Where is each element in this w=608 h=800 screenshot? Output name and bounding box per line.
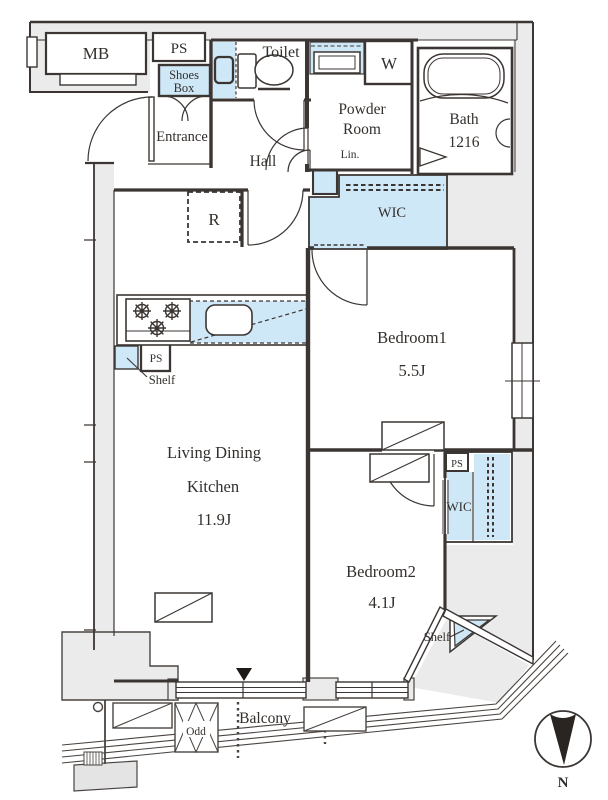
- entrance-door-leaf: [149, 97, 154, 161]
- shoes-box-door-arc: [163, 96, 188, 121]
- vent-hatch: [84, 752, 102, 765]
- powder-room-label: Powder: [338, 101, 386, 118]
- pipe-space-top-label: PS: [171, 41, 188, 57]
- powder-room-label: Room: [343, 121, 381, 138]
- hall-label: Hall: [250, 153, 277, 170]
- ldk-label: Living Dining: [167, 443, 261, 462]
- hall-ldk-door: [248, 190, 303, 245]
- linen-closet: [313, 170, 337, 194]
- toilet-tank: [238, 54, 256, 88]
- ldk-size-label: 11.9J: [197, 510, 232, 529]
- bedroom1-size-label: 5.5J: [398, 361, 426, 380]
- refrigerator-label: R: [208, 210, 220, 229]
- outdoor-unit-label: Odd: [186, 726, 206, 738]
- bedroom2-label: Bedroom2: [346, 562, 416, 581]
- floor-plan-drawing: MB PS Toilet Shoes Box Entrance Hall Pow…: [0, 0, 608, 800]
- bedroom2-size-label: 4.1J: [368, 593, 396, 612]
- shoes-box-label: Shoes: [169, 68, 199, 82]
- meter-box-label: MB: [83, 44, 109, 63]
- shoes-box-door-arc: [182, 96, 207, 121]
- bath-size-label: 1216: [449, 134, 480, 151]
- entry-marker-icon: [236, 668, 252, 681]
- bedroom1-label: Bedroom1: [377, 328, 447, 347]
- ldk-balcony-window: [176, 682, 306, 698]
- floor-plan: MB PS Toilet Shoes Box Entrance Hall Pow…: [0, 0, 608, 800]
- toilet-label: Toilet: [262, 44, 300, 61]
- bedroom1-side-window: [505, 343, 540, 418]
- bedroom2-balcony-window: [336, 682, 408, 698]
- toilet-hand-basin: [215, 57, 233, 83]
- bedroom1-door: [312, 250, 367, 305]
- kitchen-sink: [206, 305, 252, 335]
- wic-bedroom1-label: WIC: [378, 205, 406, 221]
- balcony-label: Balcony: [239, 710, 291, 727]
- toilet-door: [254, 100, 304, 150]
- entrance-door-arc: [88, 97, 152, 161]
- compass-north-label: N: [558, 775, 569, 791]
- pipe-space-wic-label: PS: [451, 459, 463, 470]
- kitchen-shelf-label: Shelf: [149, 373, 176, 387]
- wic-bedroom2-label: WIC: [446, 499, 471, 514]
- ldk-label: Kitchen: [187, 477, 239, 496]
- shoes-box-label: Box: [174, 81, 196, 95]
- entrance-label: Entrance: [156, 129, 208, 145]
- washer-space-label: W: [381, 54, 398, 73]
- compass: [535, 711, 591, 767]
- linen-label: Lin.: [341, 149, 360, 161]
- bath-label: Bath: [449, 111, 479, 128]
- pipe-space-kitchen-label: PS: [150, 353, 163, 365]
- bedroom2-shelf-label: Shelf: [424, 630, 451, 644]
